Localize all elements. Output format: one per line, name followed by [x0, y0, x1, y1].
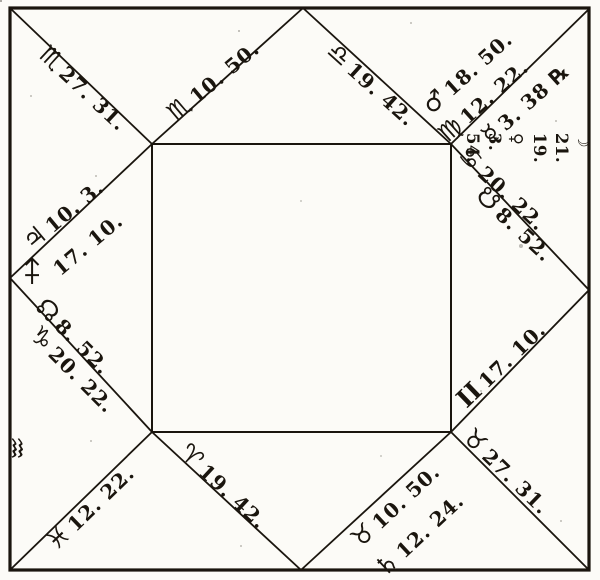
horoscope-figure: ♏27. 31. ♏10. 50. ♎19. 42. ♍12. 22. ♋20.…: [0, 0, 600, 580]
inner-square: [152, 144, 451, 432]
aquarius-icon: ♒: [3, 436, 30, 460]
leo-planet-lines: ☉ 27. 20. ☽ 21. 19. ♀ 3. 54.: [461, 133, 600, 163]
moon-position: ☽ 21. 19.: [528, 133, 595, 163]
cusp-line-house5: [301, 432, 451, 570]
paper-specks: [0, 0, 2, 2]
venus-position: ♀ 3. 54.: [461, 133, 528, 163]
leo-planet-group: ♌ ☉ 27. 20. ☽ 21. 19. ♀ 3. 54.: [461, 103, 600, 163]
sun-position: ☉ 27. 20.: [594, 133, 600, 163]
